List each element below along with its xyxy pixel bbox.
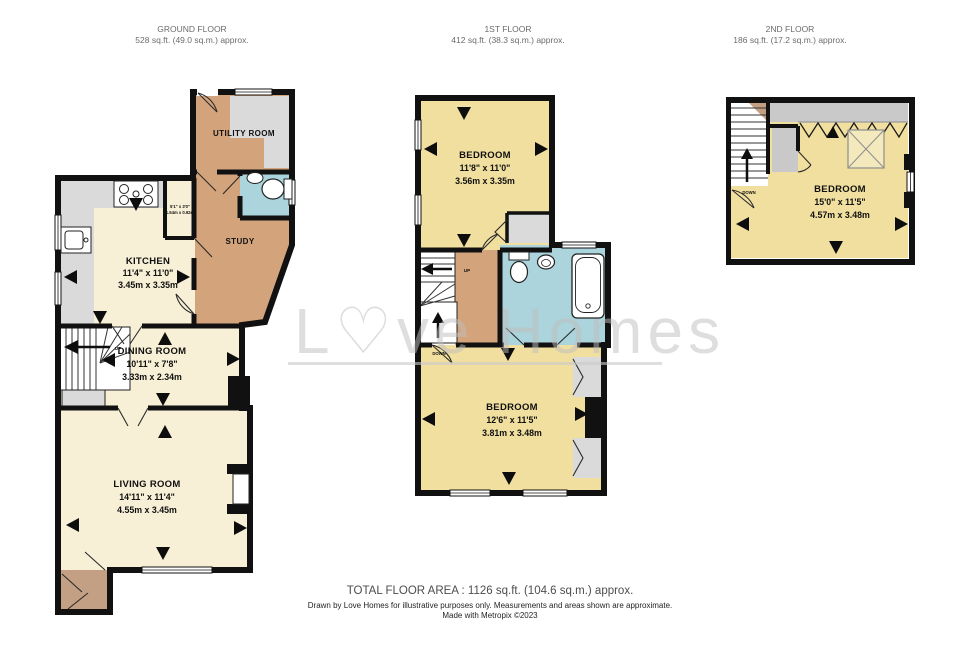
- bedroom-front-dims-m: 3.56m x 3.35m: [455, 176, 515, 186]
- second-floor-plan: BEDROOM 15'0" x 11'5" 4.57m x 3.48m DOWN: [726, 96, 916, 266]
- dining-room-label: DINING ROOM: [118, 346, 187, 357]
- fireplace-jamb: [227, 464, 250, 474]
- utility-room-label: UTILITY ROOM: [213, 129, 275, 138]
- second-floor-header: 2ND FLOOR 186 sq.ft. (17.2 sq.m.) approx…: [680, 24, 900, 46]
- eaves-storage: [768, 102, 908, 122]
- wc-basin-icon: [247, 173, 263, 184]
- basin-icon: [538, 255, 555, 269]
- ground-floor-title: GROUND FLOOR: [82, 24, 302, 35]
- kitchen-dims-m: 3.45m x 3.35m: [118, 280, 178, 290]
- understairs-cupboard: [62, 390, 105, 406]
- bedroom-front-dims-ft: 11'8" x 11'0": [460, 163, 511, 173]
- floorplan-page: GROUND FLOOR 528 sq.ft. (49.0 sq.m.) app…: [0, 0, 980, 668]
- bedroom-front-closet: [507, 213, 552, 243]
- bedroom-top-dims-m: 4.57m x 3.48m: [810, 210, 870, 220]
- bedroom-top-label: BEDROOM: [814, 184, 866, 195]
- ground-floor-plan: UTILITY ROOM STUDY KITCHEN 11'4" x 11'0"…: [52, 88, 300, 618]
- bedroom-back-closet-2: [573, 438, 603, 478]
- first-floor-title: 1ST FLOOR: [398, 24, 618, 35]
- living-dims-ft: 14'11" x 11'4": [119, 492, 175, 502]
- total-floor-area: TOTAL FLOOR AREA : 1126 sq.ft. (104.6 sq…: [0, 585, 980, 597]
- kitchen-label: KITCHEN: [126, 256, 170, 267]
- cupboard-area: [772, 126, 798, 172]
- second-windows: [907, 172, 914, 192]
- dining-dims-m: 3.33m x 2.34m: [122, 372, 182, 382]
- watermark-underline: [288, 362, 662, 365]
- chimney-breast-bedroom: [585, 397, 604, 438]
- dining-dims-ft: 10'11" x 7'8": [126, 359, 177, 369]
- hall-area: [193, 172, 240, 220]
- first-floor-header: 1ST FLOOR 412 sq.ft. (38.3 sq.m.) approx…: [398, 24, 618, 46]
- bedroom-top-dims-ft: 15'0" x 11'5": [814, 197, 865, 207]
- lobby-dims-m: 1.54m x 0.92m: [166, 210, 195, 215]
- bedroom-back-dims-m: 3.81m x 3.48m: [482, 428, 542, 438]
- living-room-label: LIVING ROOM: [113, 479, 180, 490]
- lobby-area: [165, 180, 195, 238]
- bedroom-front-label: BEDROOM: [459, 150, 511, 161]
- kitchen-dims-ft: 11'4" x 11'0": [123, 268, 174, 278]
- second-down-label: DOWN: [742, 190, 755, 195]
- lobby-dims-ft: 5'1" x 3'0": [170, 204, 190, 209]
- kitchen-sink-icon: [61, 227, 91, 253]
- bedroom-back-dims-ft: 12'6" x 11'5": [486, 415, 537, 425]
- study-label: STUDY: [225, 237, 254, 246]
- second-floor-area: 186 sq.ft. (17.2 sq.m.) approx.: [680, 35, 900, 46]
- love-homes-watermark: L♡ve Homes: [294, 294, 725, 369]
- chimney-breast-dining: [228, 376, 250, 406]
- first-up-label: UP: [464, 268, 470, 273]
- ground-floor-header: GROUND FLOOR 528 sq.ft. (49.0 sq.m.) app…: [82, 24, 302, 46]
- footer-disclaimer: Drawn by Love Homes for illustrative pur…: [0, 601, 980, 610]
- fireplace-jamb: [227, 504, 250, 514]
- wc-toilet-icon: [262, 179, 292, 199]
- second-floor-title: 2ND FLOOR: [680, 24, 900, 35]
- stairs-up-label: UP: [115, 346, 121, 351]
- ground-floor-area: 528 sq.ft. (49.0 sq.m.) approx.: [82, 35, 302, 46]
- fireplace-recess: [233, 474, 249, 504]
- living-dims-m: 4.55m x 3.45m: [117, 505, 177, 515]
- toilet-icon: [509, 252, 529, 283]
- skylight-icon: [848, 130, 884, 168]
- first-floor-area: 412 sq.ft. (38.3 sq.m.) approx.: [398, 35, 618, 46]
- bedroom-back-label: BEDROOM: [486, 402, 538, 413]
- study-area: [193, 218, 292, 325]
- footer-credit: Made with Metropix ©2023: [0, 611, 980, 620]
